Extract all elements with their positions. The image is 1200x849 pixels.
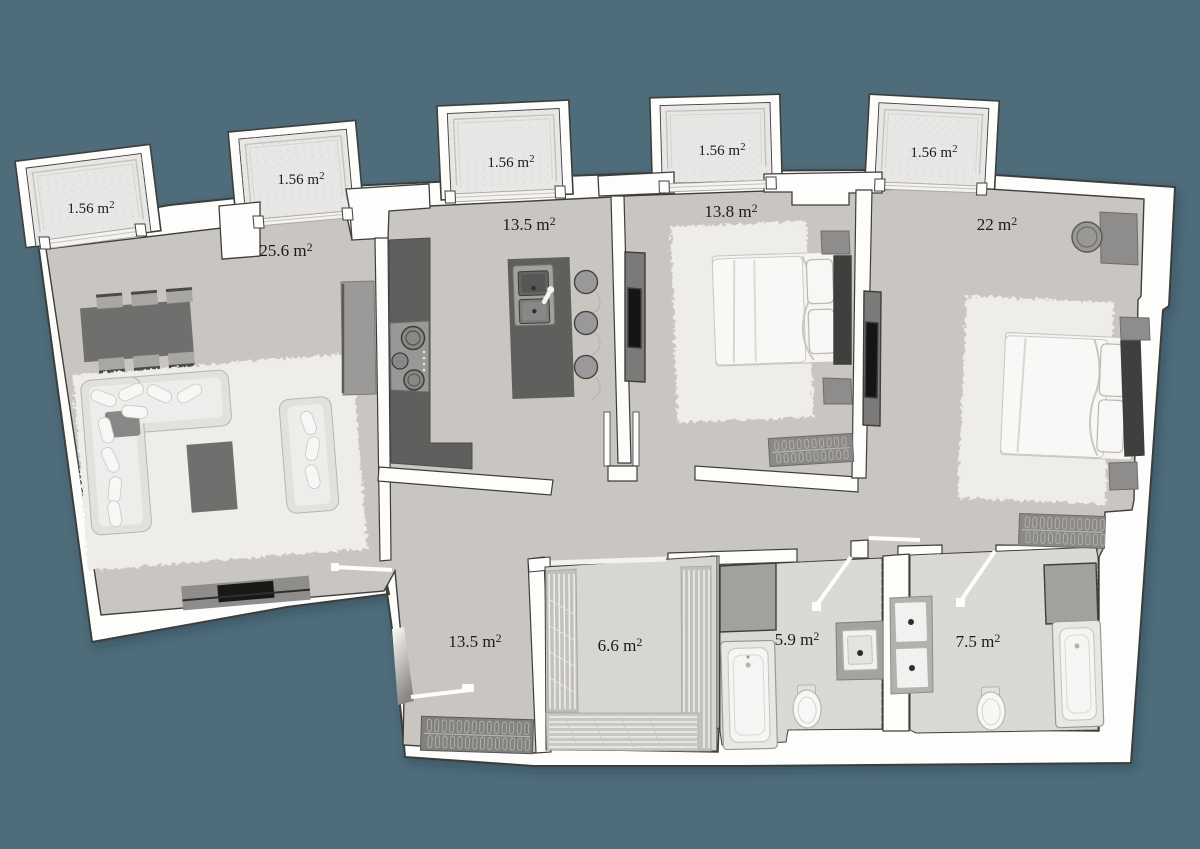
svg-text:1.56 m2: 1.56 m2 [67,199,114,217]
svg-text:1.56 m2: 1.56 m2 [487,153,534,171]
svg-text:13.5 m2: 13.5 m2 [448,631,501,651]
svg-text:22 m2: 22 m2 [977,214,1017,234]
svg-text:1.56 m2: 1.56 m2 [698,141,745,159]
svg-text:6.6 m2: 6.6 m2 [598,635,643,655]
svg-text:13.8 m2: 13.8 m2 [704,201,757,221]
svg-text:13.5 m2: 13.5 m2 [502,214,555,234]
svg-text:25.6 m2: 25.6 m2 [259,240,312,260]
svg-text:1.56 m2: 1.56 m2 [910,143,957,161]
svg-text:7.5 m2: 7.5 m2 [956,631,1001,651]
svg-text:5.9 m2: 5.9 m2 [775,629,820,649]
svg-text:1.56 m2: 1.56 m2 [277,170,324,188]
